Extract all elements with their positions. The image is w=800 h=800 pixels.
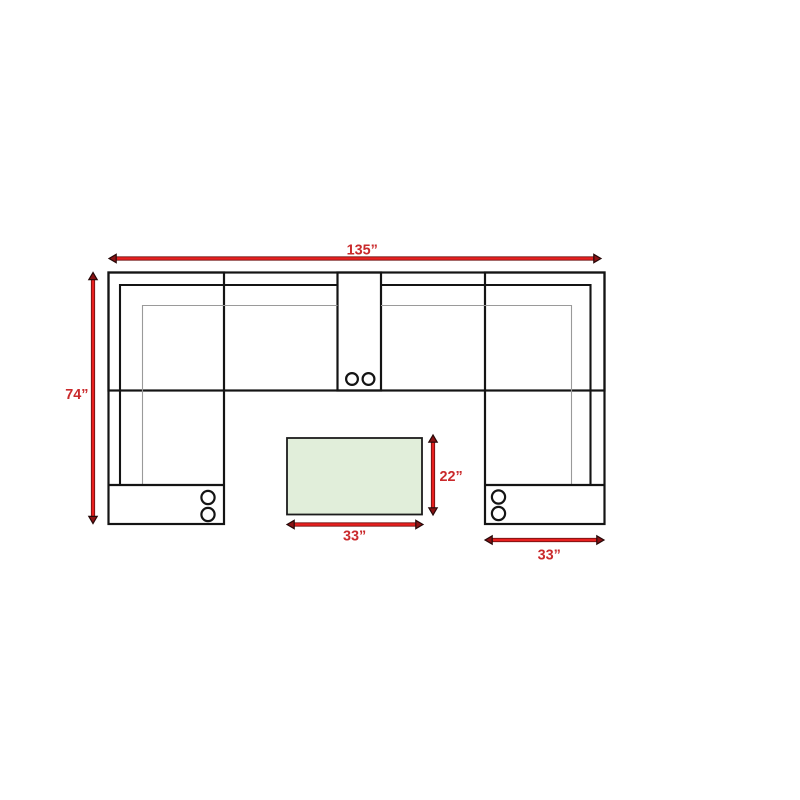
svg-text:33”: 33”: [538, 548, 561, 564]
svg-text:22”: 22”: [440, 469, 463, 485]
svg-text:33”: 33”: [343, 529, 366, 545]
svg-text:135”: 135”: [347, 243, 378, 259]
svg-text:74”: 74”: [65, 387, 88, 403]
